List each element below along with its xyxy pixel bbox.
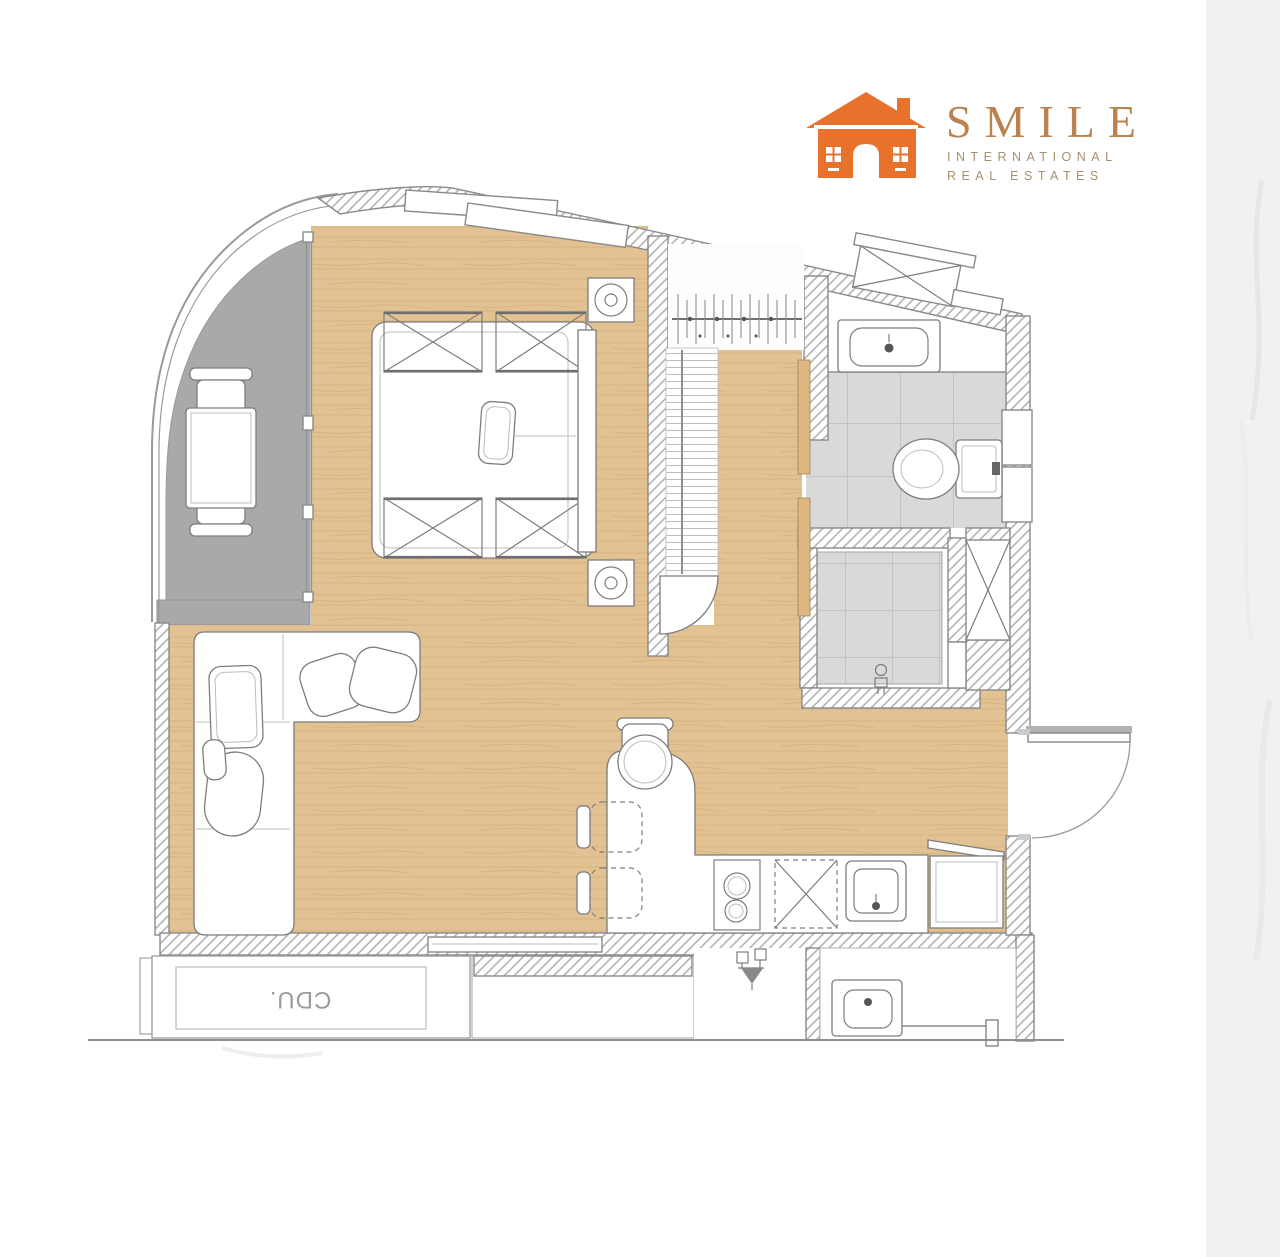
nightstand: [588, 560, 634, 606]
shower-north-wall: [798, 528, 950, 548]
ledge-basin: [820, 948, 1016, 1046]
brand-subtitle-line1: INTERNATIONAL: [947, 150, 1118, 164]
bed-pillow: [478, 401, 516, 465]
brand-subtitle-line2: REAL ESTATES: [947, 169, 1104, 183]
shelf-stack: [666, 348, 718, 576]
balcony-chair: [190, 368, 252, 380]
cdu-label: CDU.: [269, 986, 332, 1013]
round-table: [618, 735, 672, 789]
sofa-pillow: [209, 665, 264, 749]
bottom-ledge-middle: [472, 956, 694, 1038]
flush-button: [992, 462, 1000, 475]
marble-background-band: [1206, 0, 1280, 1257]
duct-shaft: [966, 540, 1010, 640]
brand-name: SMILE: [946, 96, 1149, 147]
shower-south-wall: [802, 688, 980, 708]
brand-logo: SMILE INTERNATIONAL REAL ESTATES: [806, 92, 1149, 183]
balcony-table: [186, 408, 256, 508]
storage-column: [1002, 467, 1032, 522]
door-leaf: [1028, 733, 1130, 742]
kitchen-sink: [846, 861, 906, 921]
bed: [372, 312, 596, 558]
balcony-table-set: [186, 368, 256, 536]
bottom-wall-column: [806, 948, 820, 1040]
window: [428, 937, 602, 952]
closet-panel: [798, 498, 810, 616]
floor-plan-page: SMILE INTERNATIONAL REAL ESTATES: [0, 0, 1280, 1257]
floor-plan-image: SMILE INTERNATIONAL REAL ESTATES: [0, 0, 1280, 1257]
shower-east-wall: [948, 538, 968, 642]
closet-panel: [798, 360, 810, 474]
storage-column: [1002, 410, 1032, 465]
toilet: [893, 439, 1002, 499]
headboard: [578, 330, 596, 552]
water-valve-fixture: [694, 948, 806, 1040]
nightstand: [588, 278, 634, 322]
vanity-sink: [838, 320, 940, 372]
cdu-ledge: CDU.: [140, 956, 470, 1038]
